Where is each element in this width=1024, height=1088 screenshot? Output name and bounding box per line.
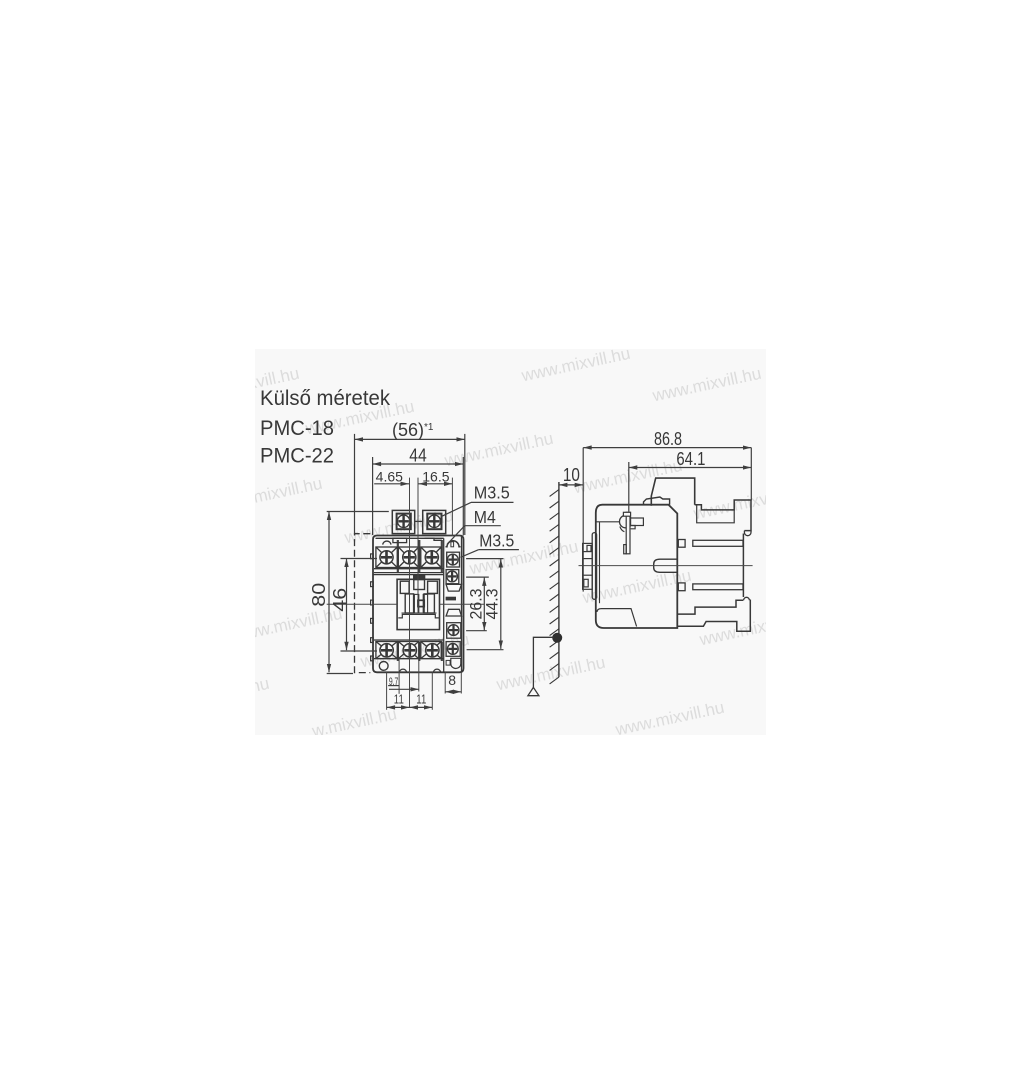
svg-text:www.mixvill.hu: www.mixvill.hu <box>697 608 766 650</box>
svg-text:46: 46 <box>330 588 350 612</box>
svg-text:44.3: 44.3 <box>483 589 501 620</box>
svg-text:www.mixvill.hu: www.mixvill.hu <box>494 653 607 695</box>
svg-text:44: 44 <box>409 446 427 466</box>
svg-text:86.8: 86.8 <box>654 429 682 449</box>
svg-text:Külső méretek: Külső méretek <box>260 387 390 410</box>
svg-text:www.mixvill.hu: www.mixvill.hu <box>571 456 684 498</box>
svg-text:PMC-18: PMC-18 <box>260 417 334 440</box>
svg-text:11: 11 <box>394 692 404 707</box>
svg-text:M3.5: M3.5 <box>474 482 510 502</box>
svg-text:11: 11 <box>416 692 426 707</box>
svg-text:www.mixvill.hu: www.mixvill.hu <box>255 474 324 516</box>
svg-text:w.mixvill.hu: w.mixvill.hu <box>309 704 398 735</box>
svg-text:www.mixvill.hu: www.mixvill.hu <box>519 349 632 386</box>
svg-text:www.mixvill.hu: www.mixvill.hu <box>650 364 763 406</box>
svg-text:PMC-22: PMC-22 <box>260 444 334 467</box>
svg-text:80: 80 <box>309 583 329 607</box>
svg-text:9.7: 9.7 <box>389 676 399 688</box>
svg-text:M4: M4 <box>474 507 496 527</box>
svg-text:M3.5: M3.5 <box>479 531 514 551</box>
svg-text:www.mixvill.hu: www.mixvill.hu <box>691 482 766 524</box>
svg-text:www.mixvill.hu: www.mixvill.hu <box>613 698 726 735</box>
svg-text:4.65: 4.65 <box>376 469 403 485</box>
svg-text:www.mixvill.hu: www.mixvill.hu <box>255 674 271 716</box>
svg-text:8: 8 <box>448 672 456 688</box>
svg-text:10: 10 <box>563 465 580 485</box>
svg-text:(56)*1: (56)*1 <box>392 420 434 440</box>
svg-text:64.1: 64.1 <box>676 449 705 469</box>
svg-text:16.5: 16.5 <box>422 469 449 485</box>
